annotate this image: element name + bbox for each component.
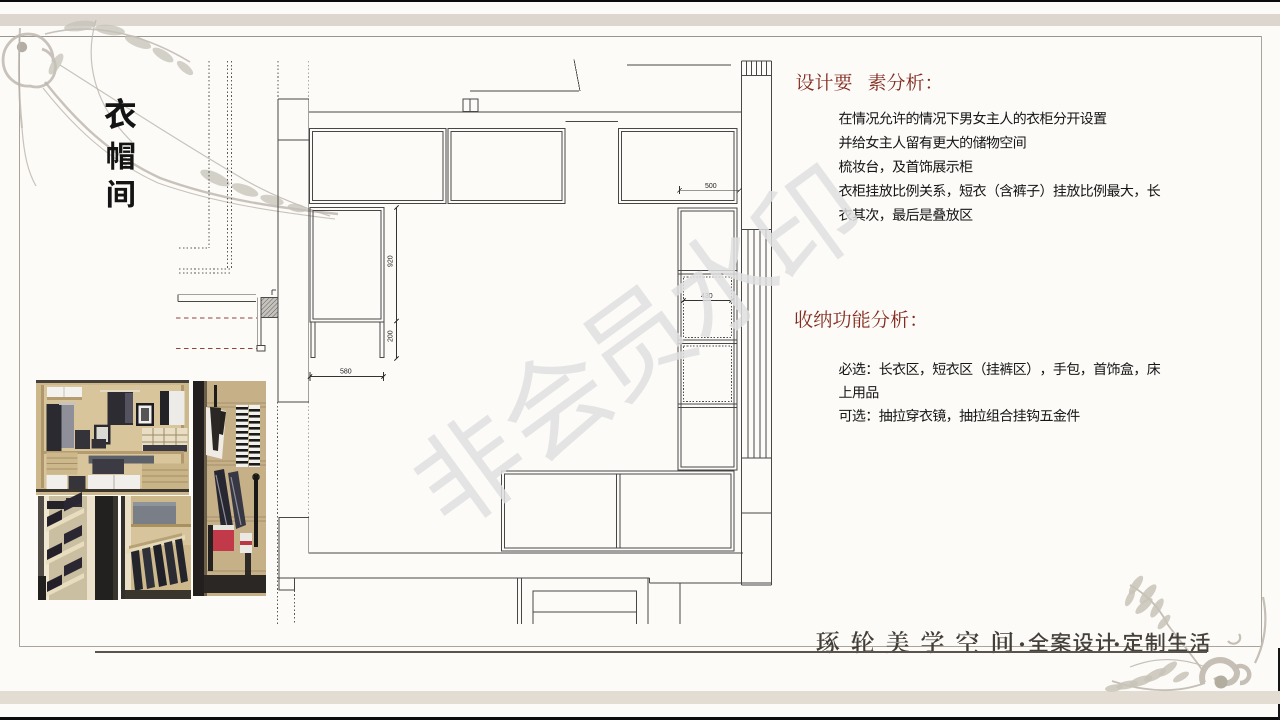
svg-text:580: 580	[340, 369, 352, 376]
